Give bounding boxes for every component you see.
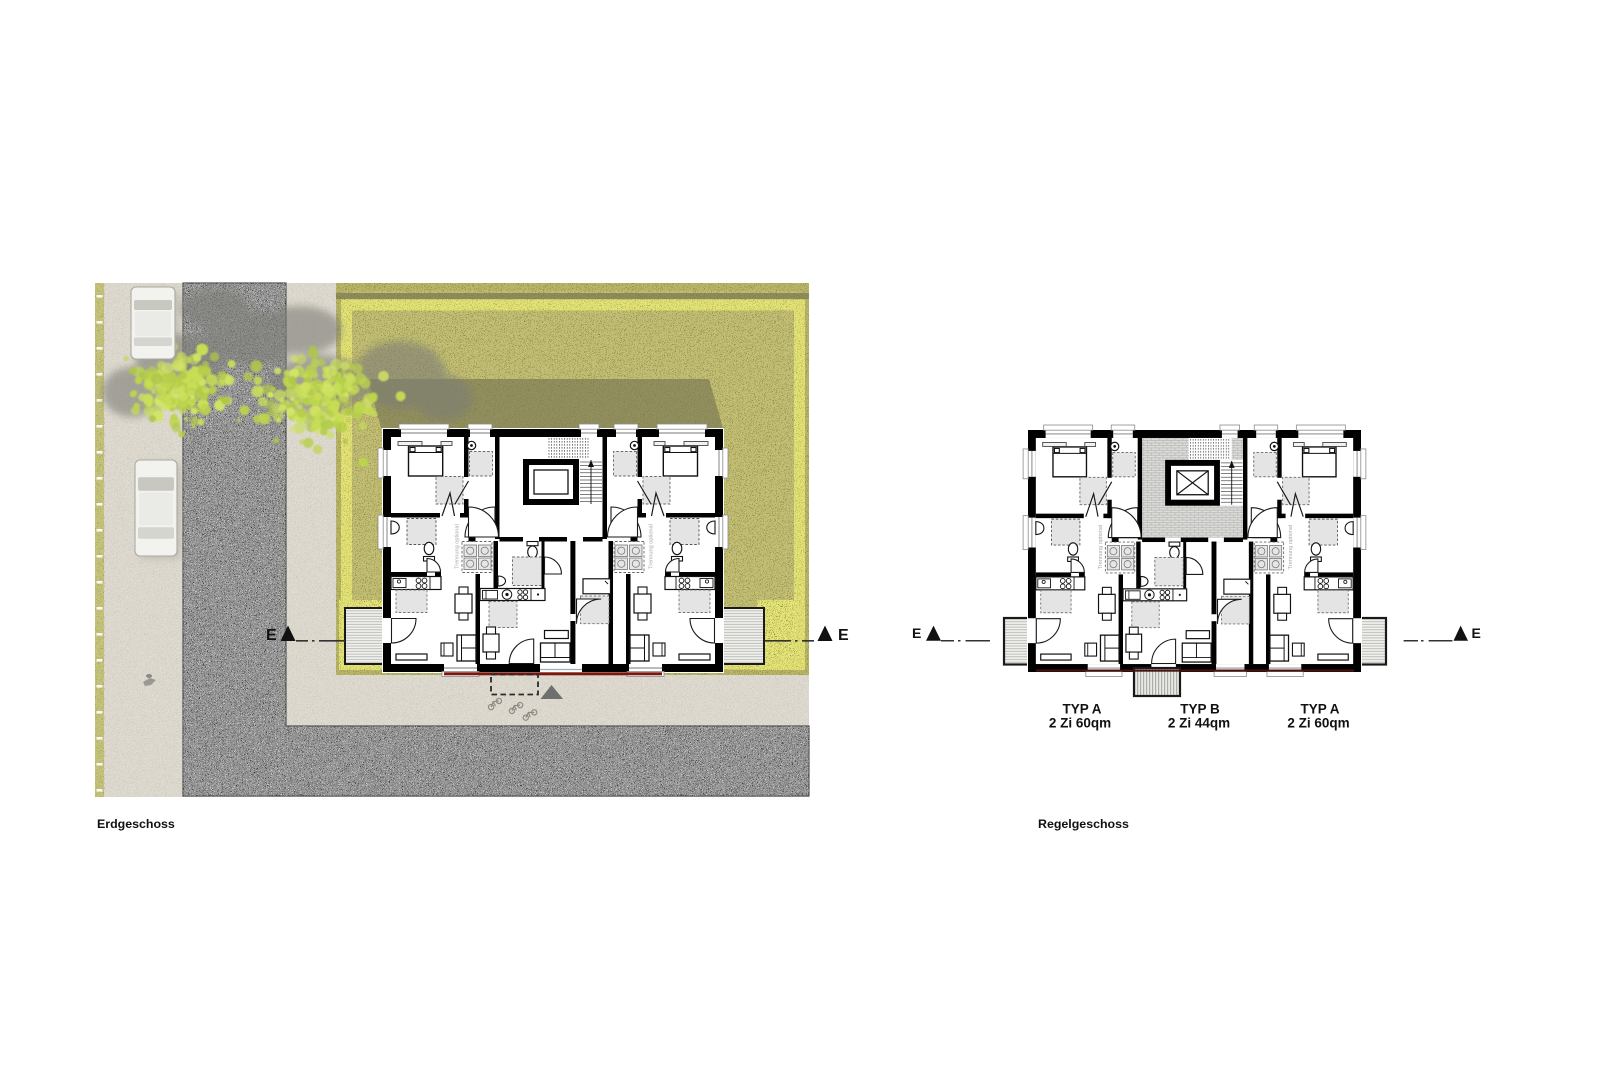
- svg-text:Erdgeschoss: Erdgeschoss: [97, 817, 175, 831]
- svg-text:TYP A: TYP A: [1062, 702, 1101, 717]
- svg-text:E: E: [1472, 625, 1481, 641]
- svg-text:TYP A: TYP A: [1300, 702, 1339, 717]
- svg-text:E: E: [838, 627, 849, 644]
- svg-text:E: E: [912, 625, 921, 641]
- svg-text:Regelgeschoss: Regelgeschoss: [1038, 817, 1129, 831]
- svg-text:2 Zi 60qm: 2 Zi 60qm: [1287, 716, 1349, 731]
- svg-text:TYP B: TYP B: [1180, 702, 1220, 717]
- svg-text:E: E: [266, 627, 277, 644]
- svg-text:2 Zi 44qm: 2 Zi 44qm: [1168, 716, 1230, 731]
- svg-text:2 Zi 60qm: 2 Zi 60qm: [1049, 716, 1111, 731]
